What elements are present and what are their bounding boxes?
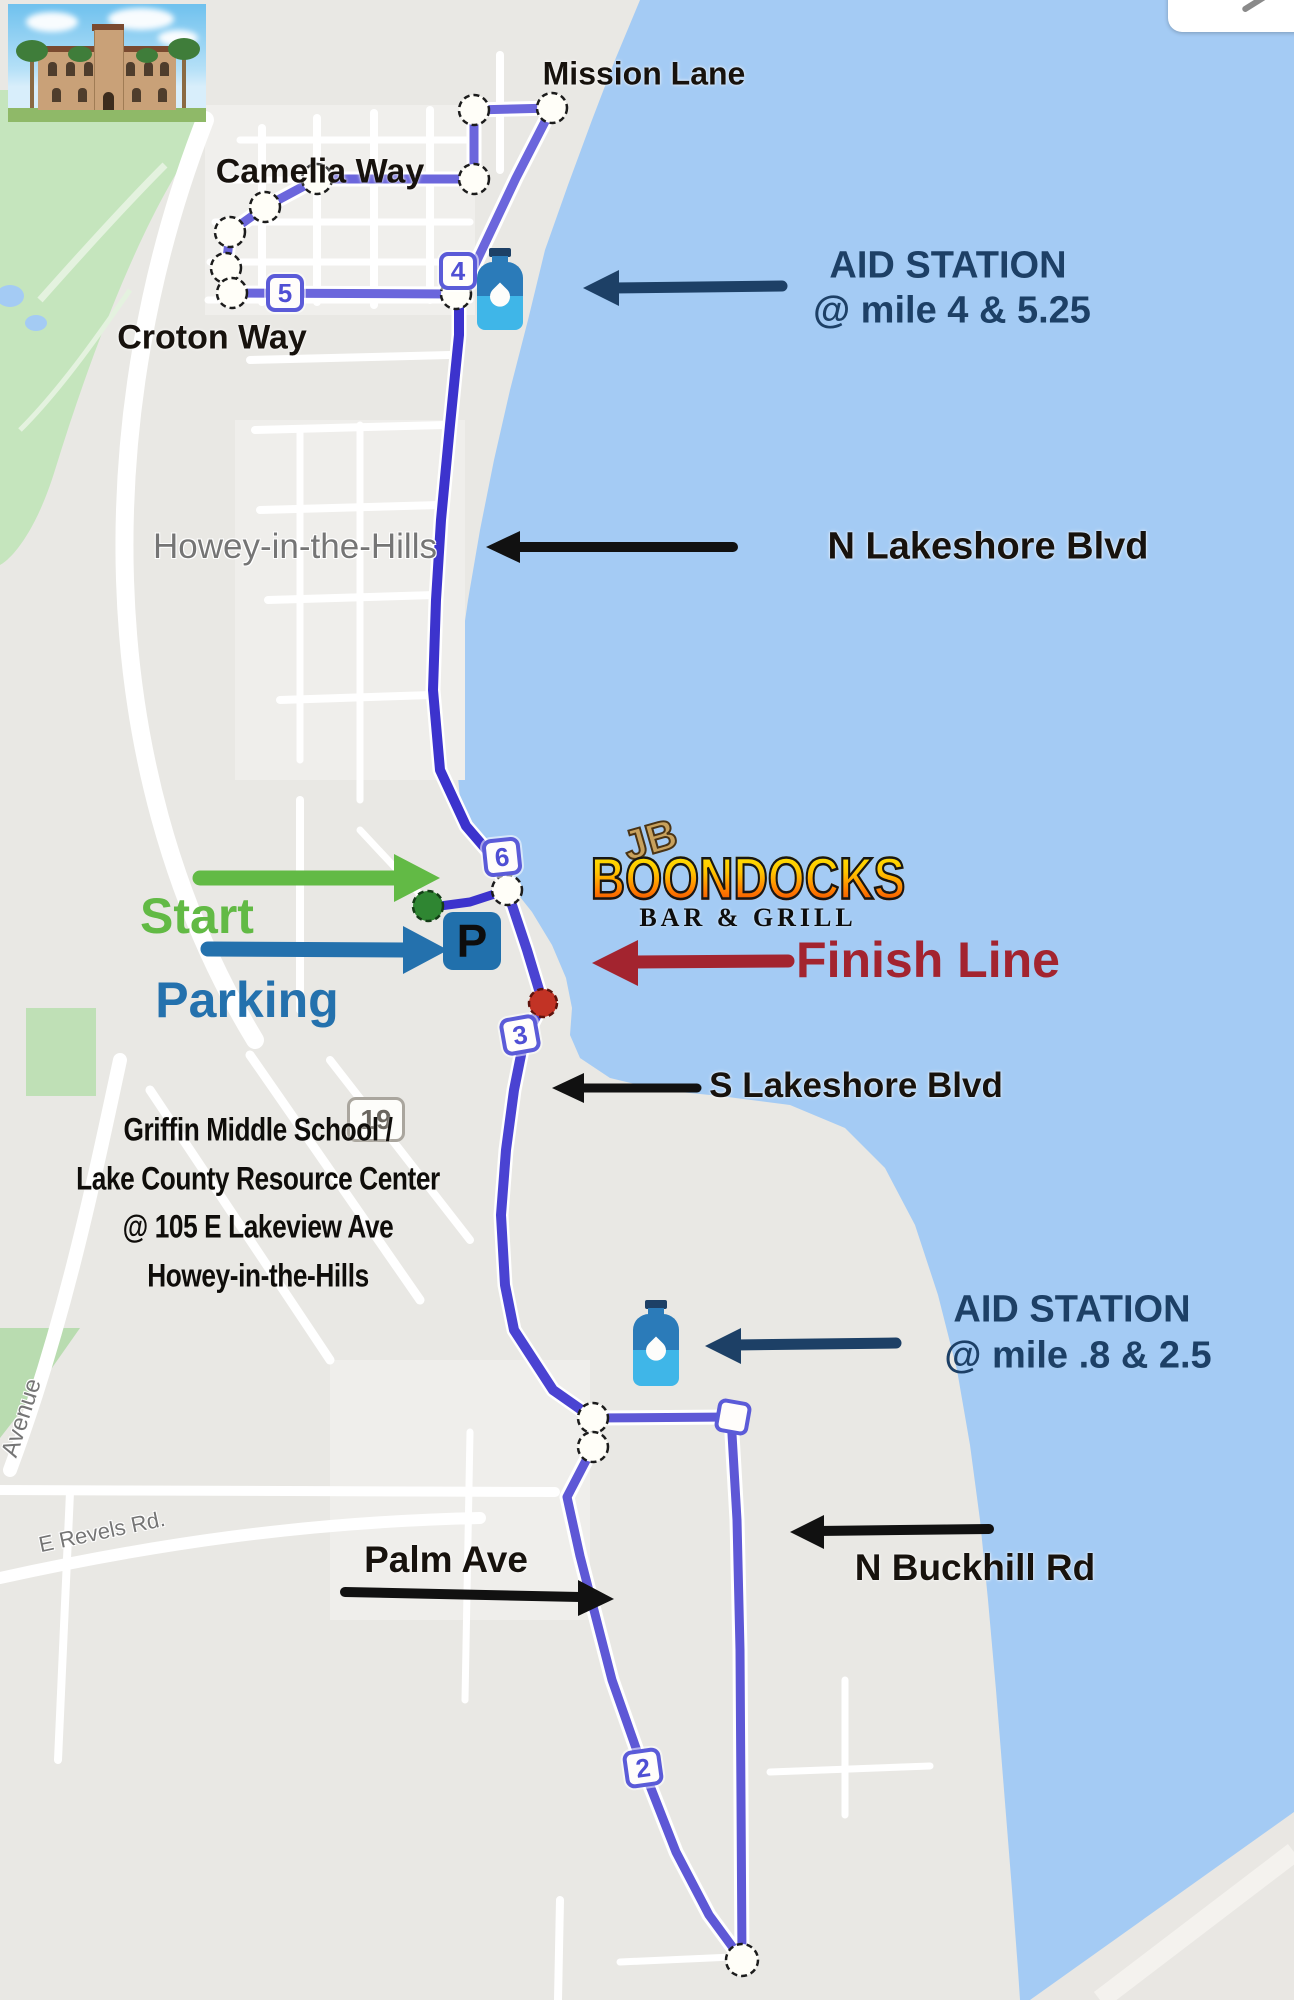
finish-line-label: Finish Line: [796, 931, 1060, 989]
aid-station-2-arrow: [705, 1328, 896, 1364]
parking-label: Parking: [155, 971, 338, 1029]
mile-marker-5: 5: [266, 274, 304, 312]
street-label-n-buckhill: N Buckhill Rd: [855, 1547, 1096, 1589]
venue-town-line: Howey-in-the-Hills: [147, 1258, 369, 1295]
park-green-small: [26, 1008, 96, 1096]
street-label-camelia-way: Camelia Way: [216, 153, 425, 192]
start-label: Start: [140, 887, 254, 945]
aid-station-1-miles: @ mile 4 & 5.25: [813, 290, 1091, 333]
finish-dot: [529, 989, 557, 1017]
street-label-croton-way: Croton Way: [117, 319, 307, 358]
water-bottle-icon-north: [477, 248, 523, 330]
n-buckhill-arrow: [790, 1515, 989, 1549]
boondocks-tagline: BAR & GRILL: [639, 903, 856, 933]
route-palm-branch: [567, 1418, 742, 1960]
parking-icon: P: [443, 912, 501, 970]
mile-marker-4: 4: [439, 252, 477, 290]
street-label-n-lakeshore: N Lakeshore Blvd: [828, 526, 1149, 569]
route-junction-badge: [713, 1397, 752, 1436]
aid-station-2-title: AID STATION: [953, 1289, 1190, 1332]
mile-marker-2: 2: [622, 1747, 665, 1790]
venue-name-line2: Lake County Resource Center: [76, 1161, 440, 1198]
mile-marker-3: 3: [498, 1013, 542, 1057]
street-label-s-lakeshore: S Lakeshore Blvd: [709, 1066, 1003, 1106]
aid-station-1-title: AID STATION: [829, 245, 1066, 288]
street-label-mission-lane: Mission Lane: [543, 56, 746, 93]
water-bottle-icon-south: [633, 1300, 679, 1386]
venue-name-line1: Griffin Middle School /: [124, 1112, 393, 1149]
venue-photo: [8, 4, 206, 122]
map-control-button[interactable]: [1168, 0, 1294, 32]
pond: [25, 315, 47, 331]
street-label-palm-ave: Palm Ave: [364, 1539, 528, 1581]
race-course-map: 2 3 4 5 6 P 19 Mission Lane Camelia Way …: [0, 0, 1294, 2000]
aid-station-2-miles: @ mile .8 & 2.5: [944, 1335, 1211, 1378]
town-label-howey: Howey-in-the-Hills: [153, 527, 437, 567]
start-dot: [413, 891, 443, 921]
venue-address-line: @ 105 E Lakeview Ave: [123, 1209, 394, 1246]
mile-marker-6: 6: [481, 836, 523, 878]
